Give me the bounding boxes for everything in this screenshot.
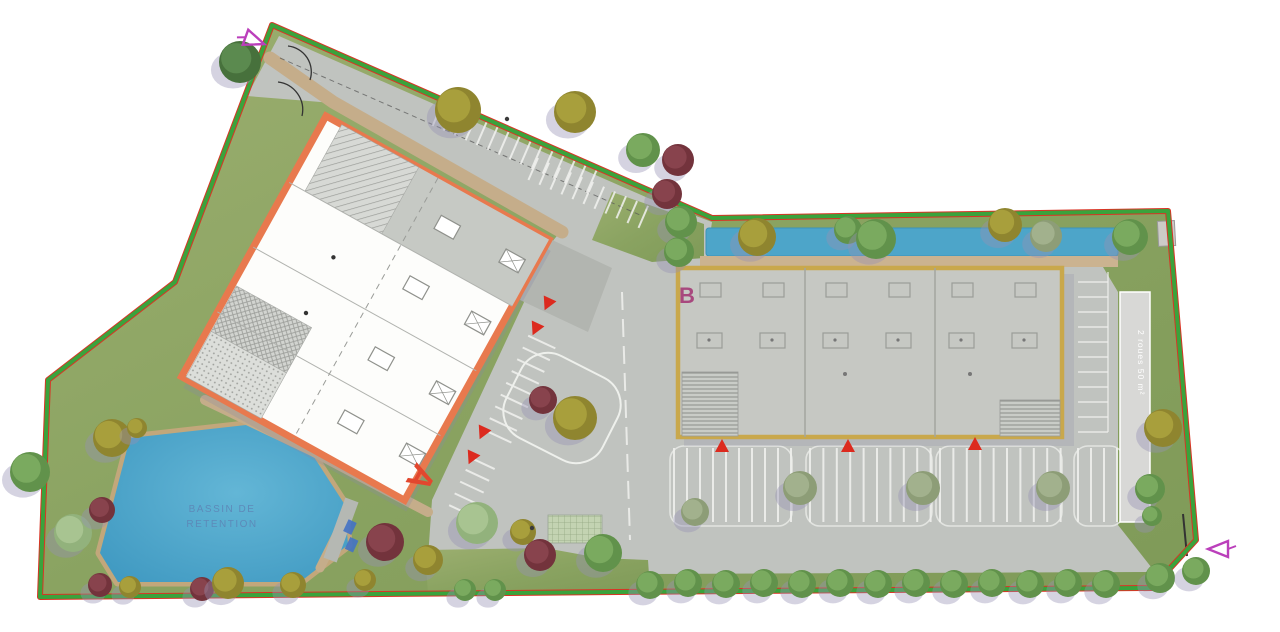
building-b-stairs-1 xyxy=(682,372,738,436)
basin-label-line1: BASSIN DE xyxy=(189,504,256,515)
site-plan-stage: A B xyxy=(0,0,1280,632)
building-b-label: B xyxy=(679,283,695,308)
building-b: B xyxy=(678,268,1074,446)
lamp-icon xyxy=(505,117,509,121)
building-b-stairs-2 xyxy=(1000,400,1060,436)
site-plan: A B xyxy=(0,0,1280,632)
section-marker-icon xyxy=(1208,541,1236,557)
tree-olive xyxy=(546,91,596,138)
lamp-icon xyxy=(530,526,534,530)
tree-green xyxy=(618,133,660,173)
bike-area-label: 2 roues 50 m² xyxy=(1136,330,1146,395)
tree-maroon xyxy=(654,144,694,182)
basin-label-line2: RETENTION xyxy=(186,519,257,530)
